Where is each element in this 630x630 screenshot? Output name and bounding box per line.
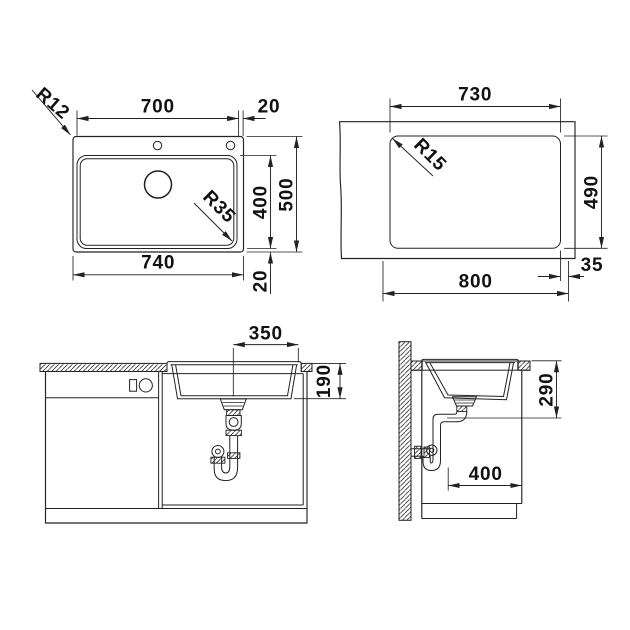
worktop-hatch-right [518, 361, 530, 370]
base-cabinet-side [422, 370, 522, 519]
dim-740-label: 740 [141, 253, 175, 274]
worktop-left [40, 363, 167, 371]
leader-r12: R12 [32, 84, 74, 135]
trap-cup-joint [229, 418, 238, 427]
tap-hole-right [226, 141, 234, 149]
dim-overall-width-740: 740 [73, 253, 244, 281]
worktop-right-stub [301, 363, 312, 371]
control-panel-detail [130, 380, 137, 392]
drain-flange [220, 399, 246, 410]
dim-400-side-label: 400 [469, 464, 503, 485]
technical-drawing-page: R12 R35 700 20 400 [0, 0, 630, 630]
trap-nut [424, 447, 430, 458]
front-section-view: 350 190 [40, 324, 346, 524]
trap-bend-flange [212, 446, 224, 458]
dim-bowl-bottom-offset-20: 20 [251, 252, 272, 294]
trap-bend-center [216, 449, 221, 454]
sink-top-view: R12 R35 700 20 400 [32, 84, 303, 294]
dim-bowl-width-700: 700 [77, 97, 243, 137]
trap-nut [457, 406, 467, 412]
dim-400-label: 400 [251, 185, 272, 219]
side-section-view: 290 400 [399, 342, 562, 521]
dim-35-label: 35 [581, 255, 604, 276]
leader-r35: R35 [194, 187, 239, 241]
dim-edge-distance-35: 35 [538, 251, 603, 282]
dim-20-top-label: 20 [258, 97, 281, 118]
bowl-outer-wall [172, 365, 297, 399]
worktop-panel [340, 122, 576, 259]
dim-cabinet-width-800: 800 [383, 261, 569, 302]
worktop-hatch-left [411, 361, 422, 370]
technical-drawing-svg: R12 R35 700 20 400 [0, 0, 630, 630]
bowl-inner-wall [176, 365, 293, 396]
leader-r15: R15 [393, 135, 451, 176]
dim-20-bottom-label: 20 [251, 270, 272, 293]
sink-rim [167, 362, 301, 372]
dim-700-label: 700 [141, 97, 175, 118]
dim-outlet-clearance-400: 400 [448, 464, 522, 491]
worktop-cutout-view: R15 730 490 35 800 [340, 85, 608, 302]
bowl-inner-wall [430, 363, 510, 397]
dim-cutout-height-490: 490 [564, 136, 608, 248]
dim-cutout-width-730: 730 [390, 85, 561, 133]
trap-nut [227, 410, 240, 416]
dim-350-label: 350 [249, 324, 283, 345]
dim-730-label: 730 [458, 85, 492, 106]
trap-nut [228, 453, 240, 459]
dim-800-label: 800 [459, 272, 493, 293]
knob [139, 379, 152, 392]
wall-section [399, 342, 411, 521]
siphon-trap-front [211, 399, 246, 481]
trap-nut [211, 457, 225, 463]
bowl-outer-wall [426, 363, 514, 400]
sink-bowl-section [167, 362, 301, 399]
dim-290-label: 290 [537, 372, 558, 406]
sink-bowl-side-section [422, 359, 518, 399]
tap-hole-left [153, 141, 161, 149]
trap-nut [415, 446, 422, 458]
outlet-pipe-top [433, 412, 457, 444]
r15-label: R15 [409, 135, 450, 176]
trap-nut [226, 430, 241, 435]
outlet-pipe-bottom [441, 412, 467, 444]
trap-bend-inner [430, 443, 433, 463]
r12-label: R12 [32, 84, 74, 124]
dim-190-label: 190 [314, 364, 335, 398]
dim-500-label: 500 [277, 177, 298, 211]
dim-drain-offset-350: 350 [233, 324, 298, 397]
drain-hole [145, 171, 172, 198]
dim-490-label: 490 [582, 175, 603, 209]
dim-bowl-height-400: 400 [240, 156, 277, 249]
dim-tap-offset-20: 20 [243, 97, 280, 119]
